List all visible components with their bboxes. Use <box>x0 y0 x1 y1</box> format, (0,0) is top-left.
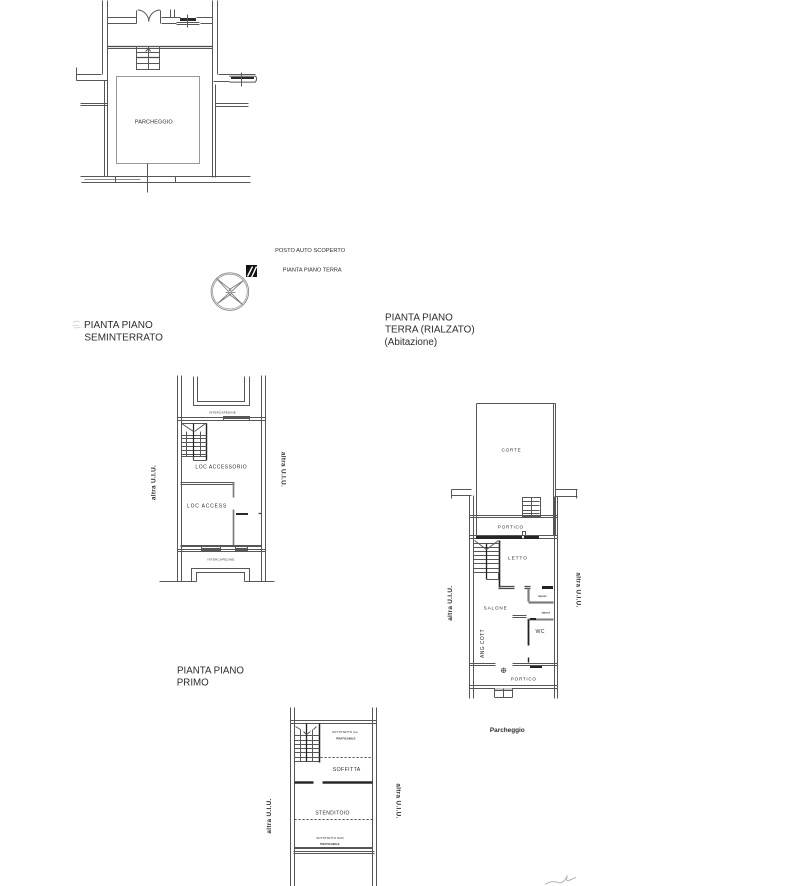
svg-text:TERRA (RIALZATO): TERRA (RIALZATO) <box>385 325 475 336</box>
svg-text:PRATICABILE: PRATICABILE <box>320 842 339 846</box>
svg-text:PIANTA PIANO TERRA: PIANTA PIANO TERRA <box>283 267 342 273</box>
svg-text:LOC ACCESS: LOC ACCESS <box>187 504 227 510</box>
svg-text:ripost: ripost <box>538 594 546 598</box>
svg-text:ripost: ripost <box>542 611 550 615</box>
svg-text:SOTTOTETTO non: SOTTOTETTO non <box>332 730 358 734</box>
svg-text:INTERCAPEDINE: INTERCAPEDINE <box>209 411 236 415</box>
svg-text:PIANTA PIANO: PIANTA PIANO <box>84 320 153 331</box>
svg-text:LETTO: LETTO <box>508 556 528 562</box>
svg-text:INTERCAPEDINE: INTERCAPEDINE <box>208 558 235 562</box>
svg-text:altra U.I.U.: altra U.I.U. <box>447 586 454 621</box>
svg-text:PARCHEGGIO: PARCHEGGIO <box>135 119 173 125</box>
svg-text:(Abitazione): (Abitazione) <box>385 337 438 348</box>
svg-text:Parcheggio: Parcheggio <box>490 727 525 734</box>
svg-text:SOTTOTETTO NON: SOTTOTETTO NON <box>316 836 344 840</box>
svg-text:SOFFITTA: SOFFITTA <box>333 767 361 773</box>
svg-text:SALONE: SALONE <box>484 605 508 610</box>
svg-text:STENDITOIO: STENDITOIO <box>315 810 349 816</box>
svg-text:PIANTA PIANO: PIANTA PIANO <box>385 312 453 323</box>
svg-text:altra U.I.U.: altra U.I.U. <box>266 798 273 833</box>
svg-text:ANG COTT: ANG COTT <box>480 629 486 658</box>
svg-text:PRIMO: PRIMO <box>177 678 209 689</box>
svg-text:altra U.I.U.: altra U.I.U. <box>575 572 582 607</box>
svg-text:POSTO AUTO SCOPERTO: POSTO AUTO SCOPERTO <box>275 248 346 254</box>
svg-text:PRATICABILE: PRATICABILE <box>336 737 355 741</box>
svg-text:CORTE: CORTE <box>502 447 522 452</box>
svg-text:altra U.I.U.: altra U.I.U. <box>280 452 287 487</box>
svg-text:PIANTA PIANO: PIANTA PIANO <box>177 665 244 676</box>
svg-text:PORTICO: PORTICO <box>511 677 537 682</box>
svg-text:altra U.I.U.: altra U.I.U. <box>395 783 402 818</box>
svg-text:altra U.I.U.: altra U.I.U. <box>151 465 158 500</box>
svg-text:SEMINTERRATO: SEMINTERRATO <box>84 333 163 344</box>
svg-text:LOC ACCESSORIO: LOC ACCESSORIO <box>195 465 247 471</box>
svg-text:PORTICO: PORTICO <box>498 524 524 529</box>
svg-text:WC: WC <box>535 629 544 635</box>
